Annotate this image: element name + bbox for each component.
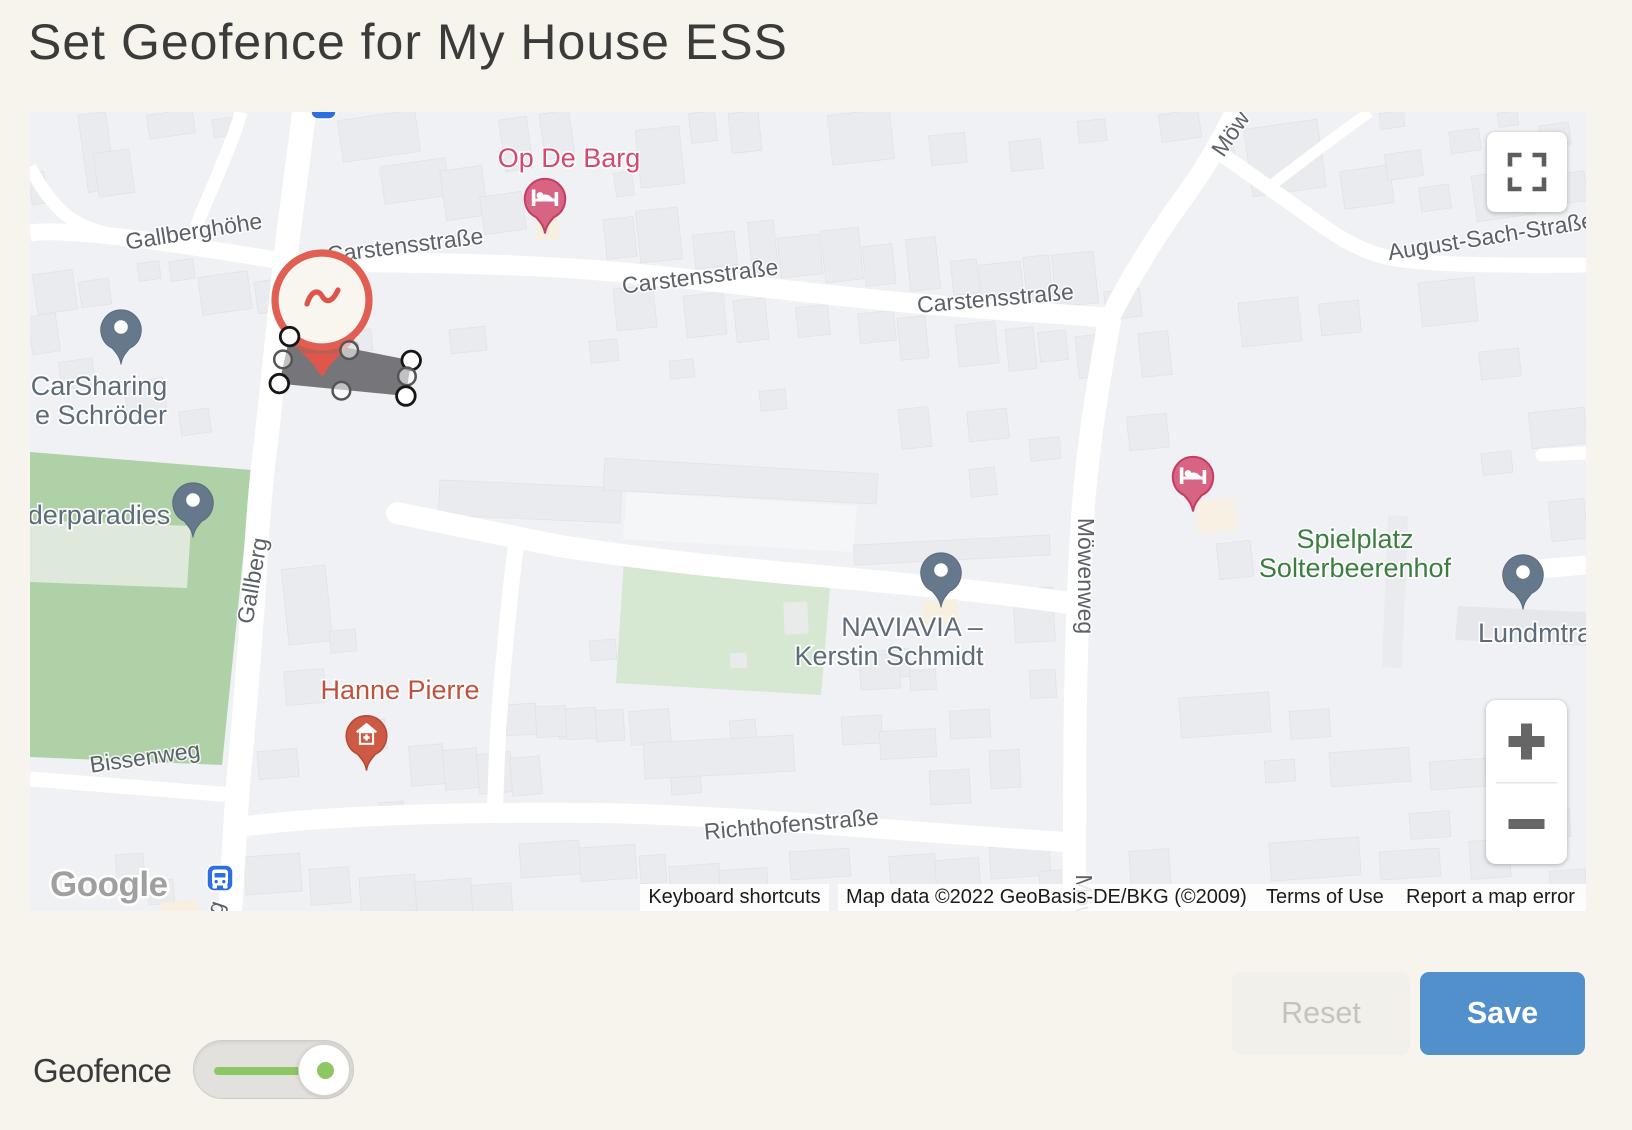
svg-text:Möwenweg: Möwenweg	[1073, 518, 1099, 634]
svg-text:Lundmtrave: Lundmtrave	[1478, 618, 1586, 648]
svg-text:e Schröder: e Schröder	[35, 400, 167, 430]
svg-text:NAVIAVIA –: NAVIAVIA –	[841, 612, 983, 642]
svg-text:Op De Barg: Op De Barg	[498, 143, 641, 173]
svg-text:Google: Google	[50, 865, 168, 904]
svg-text:Spielplatz: Spielplatz	[1296, 524, 1413, 554]
svg-text:Hanne Pierre: Hanne Pierre	[320, 675, 479, 705]
svg-text:CarSharing: CarSharing	[31, 371, 168, 401]
svg-text:Kerstin Schmidt: Kerstin Schmidt	[794, 641, 984, 671]
svg-text:Solterbeerenhof: Solterbeerenhof	[1259, 553, 1452, 583]
svg-text:derparadies: derparadies	[30, 500, 170, 530]
